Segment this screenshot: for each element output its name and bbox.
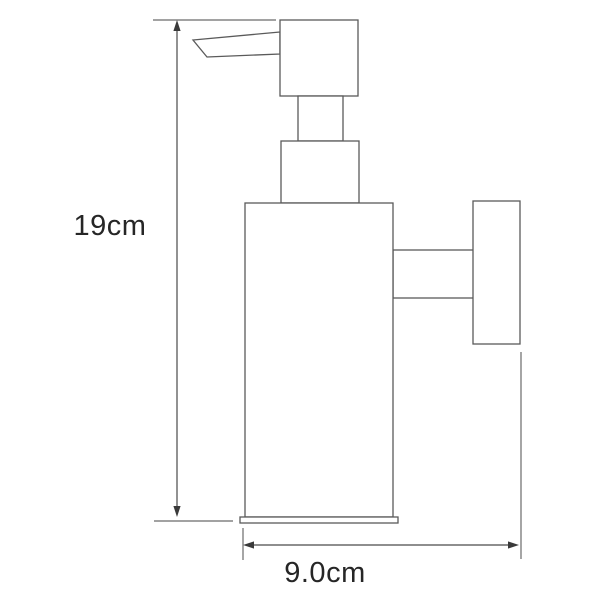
pump-collar bbox=[281, 141, 359, 203]
depth-dimension-label: 9.0cm bbox=[284, 557, 365, 589]
pump-neck bbox=[298, 96, 343, 141]
arrow-left-icon bbox=[243, 541, 254, 548]
bottle-body bbox=[245, 203, 393, 517]
mount-arm bbox=[393, 250, 474, 298]
arrow-down-icon bbox=[173, 506, 180, 517]
pump-spout bbox=[193, 32, 280, 57]
diagram-canvas: 19cm 9.0cm bbox=[0, 0, 600, 600]
soap-dispenser-technical-drawing: 19cm 9.0cm bbox=[0, 0, 600, 600]
base-plate bbox=[240, 517, 398, 523]
pump-head bbox=[280, 20, 358, 96]
arrow-right-icon bbox=[508, 541, 519, 548]
height-dimension-label: 19cm bbox=[74, 210, 147, 242]
wall-plate bbox=[473, 201, 520, 344]
arrow-up-icon bbox=[173, 20, 180, 31]
